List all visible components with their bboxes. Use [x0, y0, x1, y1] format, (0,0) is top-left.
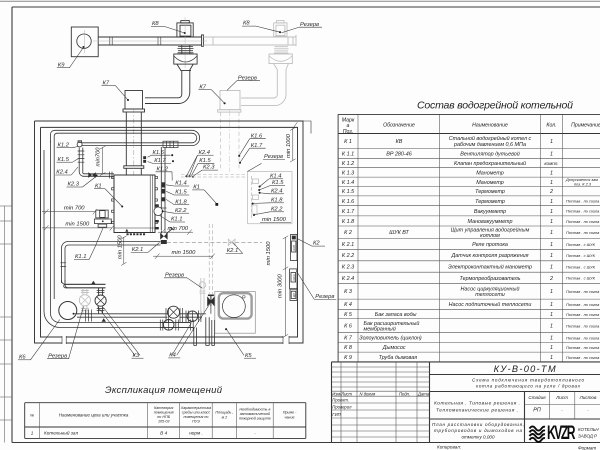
svg-text:К1.6: К1.6: [153, 150, 165, 156]
svg-text:Резерв: Резерв: [48, 353, 67, 359]
svg-text:К 6: К 6: [344, 324, 352, 330]
svg-text:ЩСН: ЩСН: [292, 274, 296, 280]
svg-text:К8: К8: [152, 21, 159, 27]
svg-text:Термопреобразователь: Термопреобразователь: [460, 276, 521, 282]
svg-text:Постав . по согла: Постав . по согла: [566, 209, 600, 214]
svg-text:Насос подпиточный теплосети: Насос подпиточный теплосети: [449, 301, 532, 308]
svg-text:К 1.6: К 1.6: [342, 199, 354, 205]
svg-text:К2.2: К2.2: [175, 208, 187, 214]
svg-text:помещения по: помещения по: [183, 415, 208, 419]
svg-text:min 700: min 700: [64, 205, 85, 211]
svg-text:компл.: компл.: [544, 161, 558, 166]
svg-text:К1.1: К1.1: [171, 217, 182, 223]
svg-text:1: 1: [550, 151, 553, 157]
svg-text:К1.5: К1.5: [58, 157, 70, 163]
svg-text:К 1.3: К 1.3: [342, 170, 354, 176]
svg-text:К7: К7: [199, 84, 206, 90]
svg-text:Экспликация помещений: Экспликация помещений: [105, 385, 223, 396]
svg-text:котлом: котлом: [480, 233, 500, 239]
svg-text:Бак запаса воды: Бак запаса воды: [375, 312, 417, 318]
svg-text:К4: К4: [169, 353, 176, 359]
svg-text:1: 1: [31, 431, 34, 436]
svg-text:1: 1: [550, 355, 553, 361]
svg-text:ГИП: ГИП: [332, 412, 341, 417]
svg-text:К 2.2: К 2.2: [342, 253, 354, 259]
svg-text:КВ: КВ: [396, 139, 403, 145]
svg-text:ШУК ВТ: ШУК ВТ: [389, 230, 409, 236]
svg-text:1: 1: [550, 336, 553, 342]
svg-text:-: -: [561, 408, 563, 413]
svg-text:min 1000: min 1000: [286, 133, 292, 158]
svg-text:Постав . по согла: Постав . по согла: [566, 302, 600, 307]
svg-text:Постав . по согла: Постав . по согла: [566, 289, 600, 294]
svg-text:Изм/Лист: Изм/Лист: [332, 391, 352, 396]
svg-text:Постав . с ШУК: Постав . с ШУК: [566, 264, 596, 269]
svg-text:К 2.3: К 2.3: [342, 265, 354, 271]
svg-text:Стадия: Стадия: [528, 395, 546, 400]
svg-text:Листов: Листов: [579, 395, 597, 400]
svg-text:2: 2: [549, 276, 553, 282]
svg-text:План расстановки оборудования,: План расстановки оборудования,: [432, 422, 524, 427]
svg-text:Манометр: Манометр: [476, 170, 504, 176]
svg-text:К6: К6: [19, 354, 26, 360]
svg-text:Манометр: Манометр: [476, 180, 504, 186]
svg-text:К 9: К 9: [344, 355, 352, 361]
svg-text:Резерв: Резерв: [300, 22, 319, 28]
svg-text:min 1500: min 1500: [65, 222, 90, 228]
svg-text:К8: К8: [243, 21, 250, 27]
svg-text:1: 1: [550, 265, 553, 271]
svg-text:Дата: Дата: [417, 391, 430, 396]
svg-text:КУ-В-00-ТМ: КУ-В-00-ТМ: [494, 364, 556, 374]
svg-text:Категория: Категория: [154, 406, 173, 410]
svg-text:min700: min700: [96, 147, 102, 167]
svg-text:К1.4: К1.4: [175, 181, 186, 187]
svg-text:Котельная . Типовые решения .: Котельная . Типовые решения .: [434, 401, 520, 407]
svg-text:Постав . по согла: Постав . по согла: [566, 312, 600, 317]
svg-text:Постав . по согла: Постав . по согла: [566, 335, 600, 340]
svg-text:К2.4: К2.4: [271, 188, 282, 194]
svg-text:Наименование: Наименование: [472, 123, 508, 129]
svg-text:1: 1: [550, 324, 553, 330]
svg-text:Котельный зал: Котельный зал: [44, 430, 78, 436]
svg-text:Реле протока: Реле протока: [472, 242, 508, 248]
svg-text:Термометр: Термометр: [475, 199, 505, 205]
svg-text:К1: К1: [95, 183, 102, 189]
svg-text:Труба дымовая: Труба дымовая: [379, 355, 418, 361]
svg-text:чание: чание: [284, 416, 294, 420]
svg-text:Схема подключения твердотоплив: Схема подключения твердотопливного: [472, 378, 584, 383]
svg-text:К1.7: К1.7: [251, 143, 263, 149]
svg-text:1: 1: [550, 289, 553, 295]
svg-text:2: 2: [549, 189, 553, 195]
svg-text:Состав водогрейной котельной: Состав водогрейной котельной: [417, 100, 573, 112]
svg-text:min 1500: min 1500: [262, 217, 287, 223]
svg-text:Резерв: Резерв: [264, 154, 283, 160]
svg-text:рабочим давлением 0,6 МПа: рабочим давлением 0,6 МПа: [453, 142, 526, 148]
svg-text:N докум: N докум: [360, 391, 376, 396]
svg-text:105-03: 105-03: [158, 420, 170, 424]
svg-text:Клапан предохранительный: Клапан предохранительный: [454, 160, 526, 167]
svg-text:1: 1: [550, 345, 553, 351]
svg-text:К2.2: К2.2: [271, 206, 283, 212]
svg-text:Наименование цеха или участка: Наименование цеха или участка: [59, 413, 129, 418]
svg-text:Постав . по согла: Постав . по согла: [566, 219, 600, 224]
svg-text:К1: К1: [193, 185, 200, 191]
svg-text:Вентилятор дутьевой: Вентилятор дутьевой: [460, 150, 520, 157]
svg-text:-: -: [587, 408, 589, 413]
svg-text:по НПБ: по НПБ: [157, 415, 170, 419]
svg-text:К2.1: К2.1: [227, 248, 238, 254]
svg-text:К1.5: К1.5: [272, 180, 284, 186]
svg-text:К 5: К 5: [344, 312, 353, 318]
svg-text:К5: К5: [245, 353, 252, 359]
svg-text:К1.7: К1.7: [154, 158, 166, 164]
svg-text:К7: К7: [103, 80, 110, 86]
svg-text:ПУЭ: ПУЭ: [192, 420, 200, 424]
svg-text:поз. К 2.3: поз. К 2.3: [574, 182, 592, 187]
svg-text:трубопроводов и дымоходов на: трубопроводов и дымоходов на: [434, 428, 522, 433]
svg-text:К 1.5: К 1.5: [342, 189, 355, 195]
svg-text:К 1.8: К 1.8: [342, 219, 354, 225]
svg-text:К2.3: К2.3: [203, 165, 215, 171]
svg-text:Датчик контроля разряжения: Датчик контроля разряжения: [450, 253, 528, 259]
svg-text:К1.2: К1.2: [58, 142, 70, 148]
svg-text:К1.1: К1.1: [75, 254, 86, 260]
svg-text:РП: РП: [533, 408, 541, 414]
svg-text:Резерв: Резерв: [238, 75, 257, 81]
svg-text:min 1500: min 1500: [172, 250, 197, 256]
svg-text:К 4: К 4: [344, 302, 352, 308]
svg-text:норм .: норм .: [189, 431, 203, 436]
svg-text:Необходимость в: Необходимость в: [239, 408, 270, 412]
svg-text:В 4: В 4: [160, 431, 167, 436]
svg-text:К 3: К 3: [344, 289, 352, 295]
svg-text:К1.8: К1.8: [271, 197, 283, 203]
svg-text:Постав . с ШУК: Постав . с ШУК: [566, 276, 596, 281]
svg-text:Обозначение: Обозначение: [383, 123, 415, 129]
svg-text:Резерв: Резерв: [165, 272, 184, 278]
svg-text:Дымосос: Дымосос: [382, 345, 406, 351]
svg-text:№: №: [30, 414, 34, 418]
svg-text:Проверил: Проверил: [332, 405, 352, 410]
svg-text:Тепломеханические решения .: Тепломеханические решения .: [436, 408, 518, 414]
svg-text:Постав . по согла: Постав . по согла: [566, 345, 600, 350]
svg-text:KVZR: KVZR: [547, 422, 576, 444]
svg-text:1: 1: [550, 230, 553, 236]
svg-text:Примечание: Примечание: [571, 123, 600, 129]
svg-text:К2.4: К2.4: [199, 150, 210, 156]
svg-text:min 3000: min 3000: [277, 273, 283, 298]
svg-text:Копировал:: Копировал:: [437, 445, 462, 450]
svg-text:1: 1: [550, 253, 553, 259]
svg-text:Кол.: Кол.: [546, 123, 556, 129]
svg-text:м 2: м 2: [222, 416, 228, 420]
svg-text:Лист: Лист: [555, 395, 568, 400]
svg-text:Площадь ,: Площадь ,: [215, 411, 233, 415]
svg-text:Постав . с ШУК: Постав . с ШУК: [566, 253, 596, 258]
svg-text:К 2.1: К 2.1: [342, 242, 354, 248]
svg-text:К 2: К 2: [344, 230, 352, 236]
svg-text:ШУК: ШУК: [292, 244, 296, 250]
svg-text:К 2.4: К 2.4: [342, 276, 354, 282]
svg-text:отметку 0,000: отметку 0,000: [461, 434, 494, 439]
svg-text:К1.5: К1.5: [199, 158, 211, 164]
svg-text:1: 1: [550, 180, 553, 186]
svg-text:Постав . по согла: Постав . по согла: [566, 230, 600, 235]
svg-text:К 1: К 1: [344, 139, 352, 145]
svg-text:теплосети: теплосети: [475, 292, 505, 298]
svg-text:Приме -: Приме -: [283, 411, 297, 415]
svg-text:1: 1: [550, 219, 553, 225]
svg-text:Постав . по согла: Постав . по согла: [566, 199, 600, 204]
svg-text:Постав . по согла: Постав . по согла: [566, 355, 600, 360]
svg-text:К 1.1: К 1.1: [342, 151, 354, 157]
svg-text:К 1.7: К 1.7: [342, 209, 355, 215]
svg-text:К2.1: К2.1: [132, 247, 143, 253]
svg-text:Термометр: Термометр: [475, 189, 505, 195]
svg-text:1: 1: [550, 312, 553, 318]
svg-text:1: 1: [550, 209, 553, 215]
svg-text:помещения: помещения: [154, 411, 174, 415]
svg-text:К2: К2: [313, 241, 320, 247]
svg-text:Резерв: Резерв: [315, 294, 334, 300]
svg-text:среды или класс: среды или класс: [182, 411, 211, 415]
svg-text:К9: К9: [58, 62, 65, 68]
svg-text:Золоуловитель (циклон): Золоуловитель (циклон): [359, 336, 422, 342]
svg-text:Поз.: Поз.: [343, 129, 353, 135]
svg-text:К1.6: К1.6: [251, 133, 263, 139]
svg-text:min 700: min 700: [168, 226, 189, 232]
svg-text:К 1.2: К 1.2: [342, 161, 354, 167]
svg-text:К1.2: К1.2: [157, 166, 169, 172]
svg-text:1: 1: [550, 302, 553, 308]
svg-text:пожарной защите: пожарной защите: [239, 417, 271, 421]
svg-text:К1.8: К1.8: [175, 199, 187, 205]
svg-text:К 7: К 7: [344, 336, 353, 342]
svg-text:1: 1: [550, 199, 553, 205]
svg-text:Электроконтактный манометр: Электроконтактный манометр: [448, 264, 532, 271]
svg-text:автоматической: автоматической: [240, 412, 270, 416]
svg-text:min 1500: min 1500: [266, 241, 272, 266]
svg-text:1: 1: [550, 242, 553, 248]
svg-text:Мановакуумметр: Мановакуумметр: [468, 219, 513, 225]
svg-text:К2.3: К2.3: [68, 182, 80, 188]
svg-text:К 8: К 8: [344, 345, 352, 351]
svg-text:К1.4: К1.4: [270, 173, 281, 179]
svg-text:К 1.4: К 1.4: [342, 180, 354, 186]
svg-text:Вакуумметр: Вакуумметр: [474, 209, 506, 215]
svg-text:ЗАВОД Р: ЗАВОД Р: [578, 434, 597, 439]
svg-text:Характеристика: Характеристика: [180, 406, 211, 410]
svg-text:КОТЕЛЬН: КОТЕЛЬН: [578, 427, 599, 432]
svg-text:Проект.: Проект.: [332, 398, 349, 403]
svg-text:ЩО: ЩО: [292, 293, 296, 297]
svg-text:ВР 280-46: ВР 280-46: [386, 151, 411, 157]
svg-text:мембранный: мембранный: [364, 325, 396, 332]
svg-text:Формат: Формат: [578, 445, 596, 450]
svg-text:1: 1: [550, 139, 553, 145]
svg-text:К2.4: К2.4: [56, 170, 67, 176]
svg-text:Постав . по согла: Постав . по согла: [566, 323, 600, 328]
svg-text:К1.5: К1.5: [175, 190, 187, 196]
svg-text:1: 1: [550, 170, 553, 176]
svg-text:котла работающего на угле / др: котла работающего на угле / дровах: [476, 383, 581, 388]
svg-text:-: -: [254, 431, 256, 436]
svg-text:Постав . с ШУК: Постав . с ШУК: [566, 242, 596, 247]
svg-text:Подп.: Подп.: [399, 391, 410, 396]
